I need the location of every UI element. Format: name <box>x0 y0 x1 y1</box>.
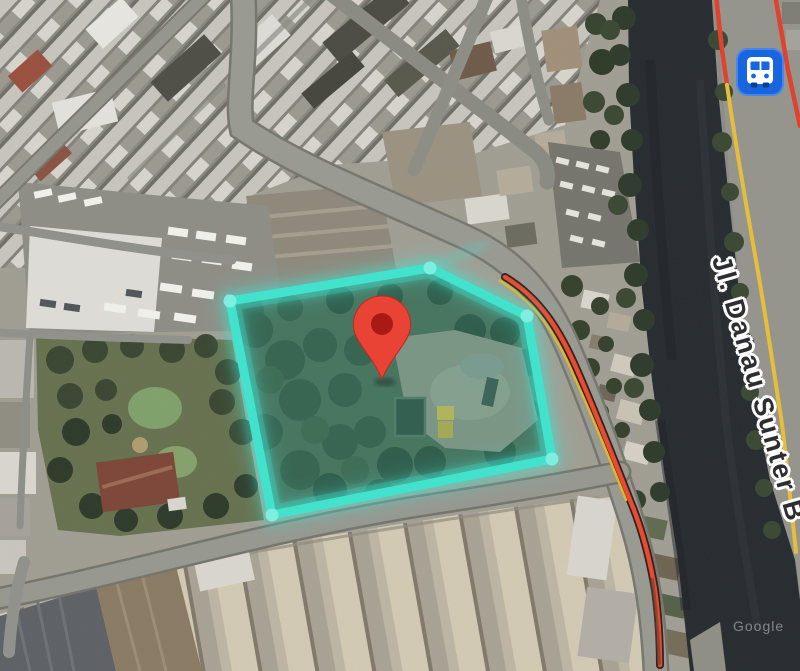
satellite-map[interactable] <box>0 0 800 671</box>
bus-station-icon[interactable] <box>737 49 783 95</box>
pin-inner-dot <box>371 313 393 335</box>
google-watermark: Google <box>733 618 784 634</box>
map-canvas[interactable]: Jl. Danau Sunter B Google <box>0 0 800 671</box>
